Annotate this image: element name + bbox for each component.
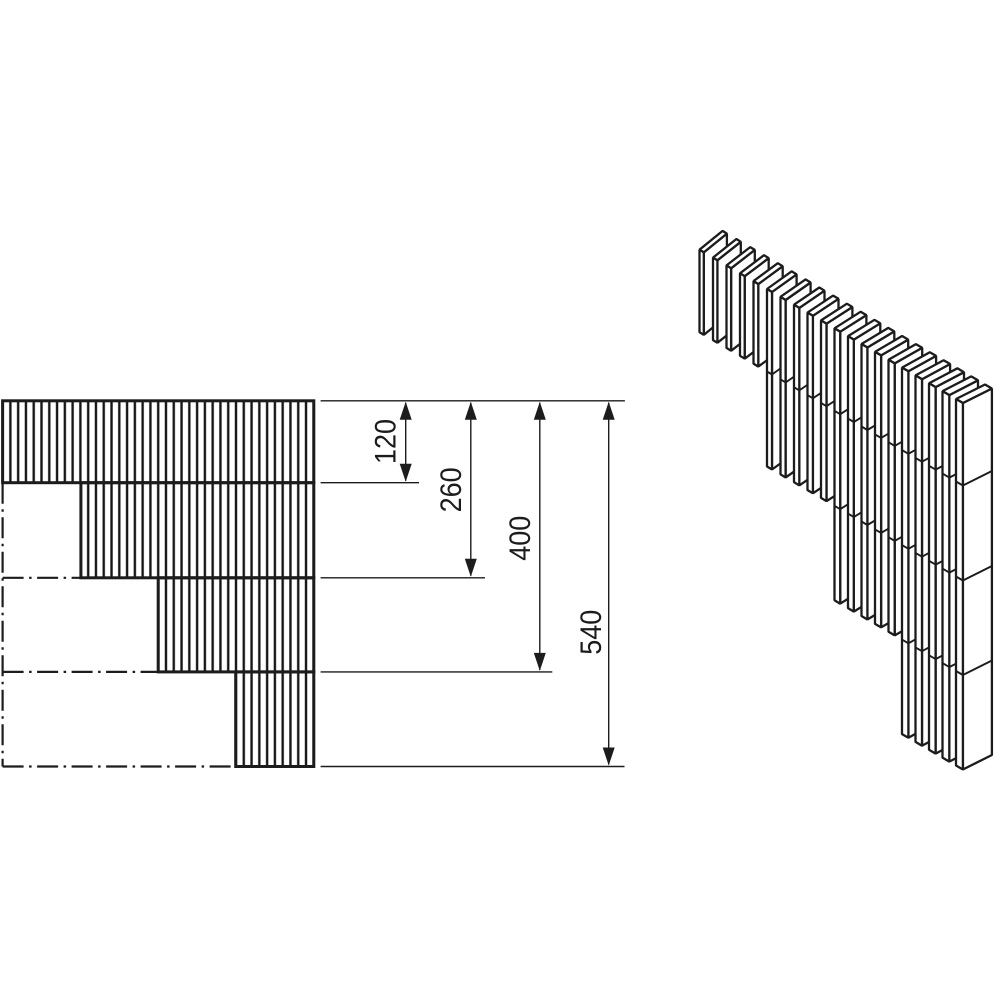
svg-text:400: 400 bbox=[504, 516, 537, 561]
svg-text:540: 540 bbox=[575, 610, 608, 655]
svg-text:120: 120 bbox=[370, 419, 403, 464]
svg-text:260: 260 bbox=[435, 467, 468, 512]
